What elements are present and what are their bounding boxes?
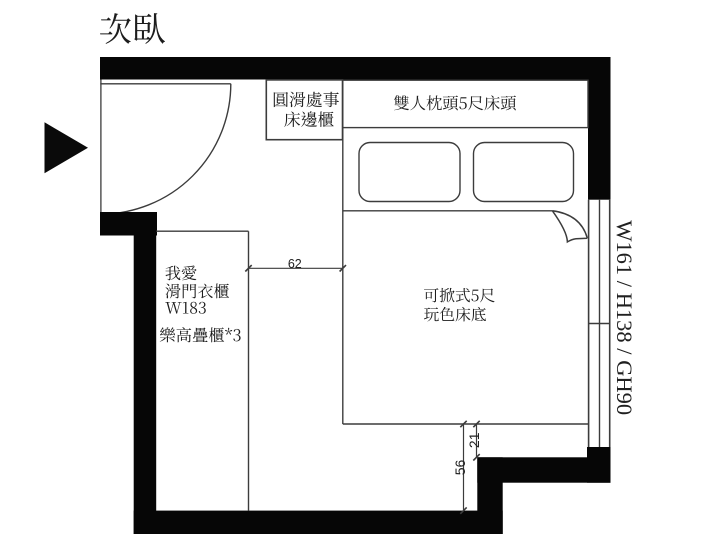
svg-text:21: 21 [466,432,482,448]
svg-text:W161 / H138 / GH90: W161 / H138 / GH90 [612,220,637,415]
svg-text:56: 56 [452,460,468,476]
svg-text:62: 62 [288,257,302,271]
